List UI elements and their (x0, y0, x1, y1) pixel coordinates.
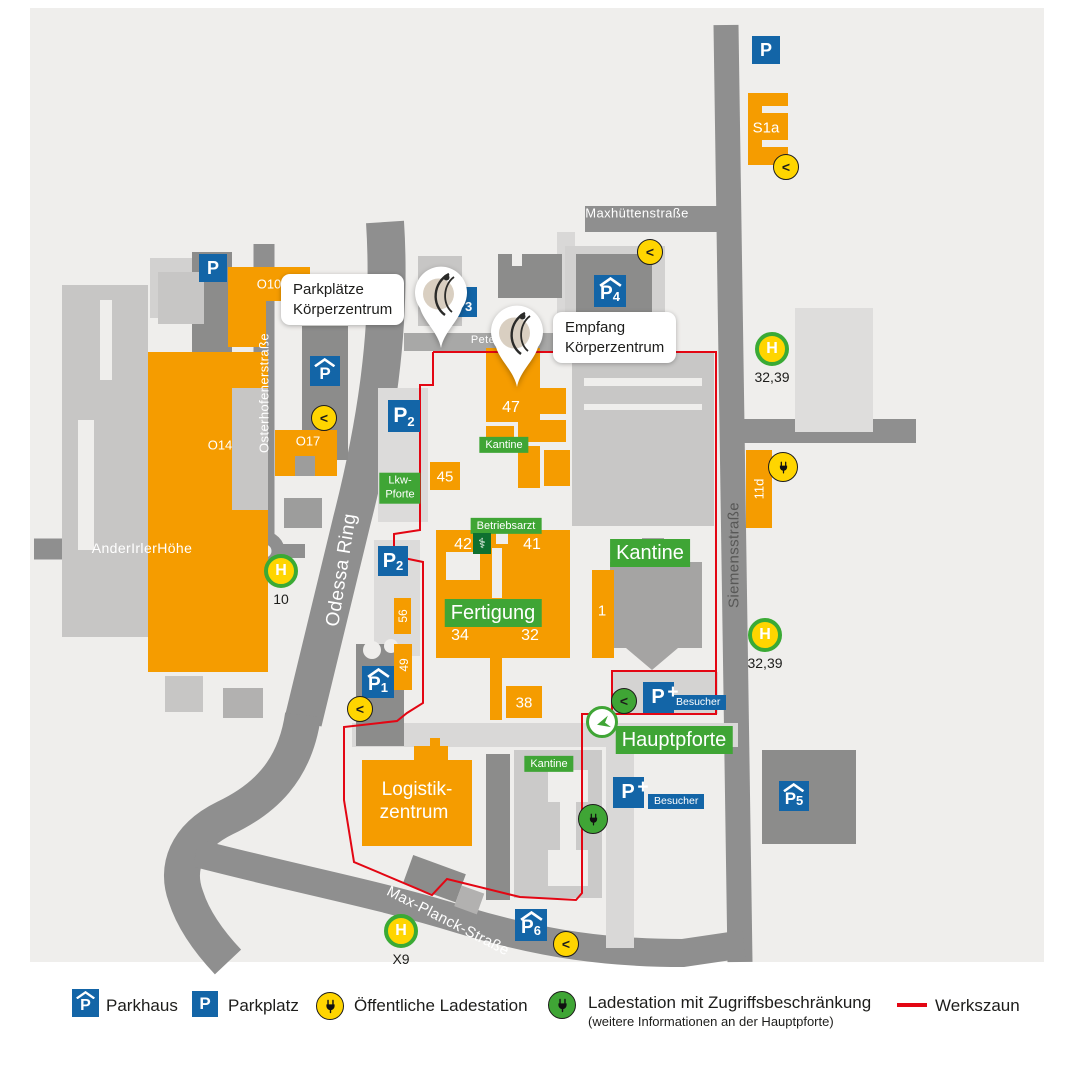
parking-sign-pplus: P+ (613, 777, 644, 808)
area-label-lkw-pforte: Lkw-Pforte (379, 473, 420, 504)
p-subscript: 1 (381, 680, 388, 695)
building-label-42: 42 (454, 536, 472, 554)
parking-sign-p: P (752, 36, 780, 64)
legend-label-restricted-charging: Ladestation mit Zugriffsbeschränkung (588, 993, 871, 1013)
building-label-11d: 11d (752, 479, 767, 500)
area-label-kantine: Kantine (610, 539, 690, 567)
bus-stop-icon: H (264, 554, 298, 588)
area-label-kantine: Kantine (524, 756, 573, 772)
parkhaus-roof-icon (313, 358, 336, 367)
building-label-o17: O17 (296, 434, 321, 449)
building-label-o14: O14 (208, 438, 233, 453)
public-charging-station-icon: < (311, 405, 337, 431)
callout-line: Körperzentrum (293, 301, 392, 318)
p-letter: P (760, 40, 772, 61)
visitor-parking-tag: Besucher (670, 695, 726, 710)
p-subscript: 5 (796, 793, 803, 808)
restricted-charging-station-icon (578, 804, 608, 834)
street-label-siemensstra-e: Siemensstraße (726, 502, 743, 608)
p-letter: P (207, 258, 219, 279)
p-letter: P (383, 550, 396, 573)
betriebsarzt-medical-icon: ⚕ (473, 533, 491, 554)
plus-sign: + (667, 682, 678, 704)
parking-sign-p6: P6 (515, 909, 547, 941)
location-pin-empfang (488, 303, 546, 389)
restricted-charging-station-icon: < (611, 688, 637, 714)
legend-label-parkhaus: Parkhaus (106, 996, 178, 1016)
plug-icon (776, 460, 791, 475)
legend-label-parkplatz: Parkplatz (228, 996, 299, 1016)
building-label-o10: O10 (257, 277, 282, 292)
street-label-osterhofenerstra-e: Osterhofenerstraße (257, 333, 272, 453)
plug-icon (586, 812, 601, 827)
public-charging-station-icon: < (637, 239, 663, 265)
building-label-49: 49 (397, 658, 411, 671)
parking-sign-p1: P1 (362, 666, 394, 698)
building-label-s1a: S1a (753, 120, 780, 137)
p-subscript: 4 (613, 289, 620, 304)
p-letter: P (651, 686, 664, 709)
parking-sign-p2: P2 (388, 400, 420, 432)
plus-sign: + (637, 777, 648, 799)
bus-stop-icon: H (755, 332, 789, 366)
public-charging-icon (316, 992, 344, 1020)
callout-line: Empfang (565, 319, 625, 336)
p-subscript: 2 (396, 558, 403, 573)
street-label-odessa-ring: Odessa Ring (322, 512, 362, 628)
building-label-38: 38 (516, 695, 533, 712)
parkhaus-roof-icon (782, 783, 805, 792)
building-label-47: 47 (502, 399, 520, 417)
area-label-betriebsarzt: Betriebsarzt (471, 518, 542, 534)
site-map: MaxhüttenstraßeOsterhofenerstraßeAnderIr… (0, 0, 1080, 1080)
public-charging-station-icon: < (347, 696, 373, 722)
fence-line (897, 1003, 927, 1007)
building-label-56: 56 (396, 609, 410, 622)
parking-sign-p: P (310, 356, 340, 386)
plug-icon (554, 997, 571, 1014)
building-label-32: 32 (521, 627, 539, 645)
public-charging-station-icon: < (773, 154, 799, 180)
legend-sublabel-restricted-charging: (weitere Informationen an der Hauptpfort… (588, 1014, 834, 1029)
building-label-logistik: Logistik- (382, 779, 453, 801)
callout-parkplaetze-koerperzentrum: Parkplätze Körperzentrum (281, 274, 404, 325)
building-label-zentrum: zentrum (380, 802, 449, 824)
public-charging-station-icon (768, 452, 798, 482)
hauptpforte-gate-icon (586, 706, 618, 738)
area-label-kantine: Kantine (479, 437, 528, 453)
parkhaus-roof-icon (366, 668, 391, 677)
location-pin-parkplaetze (412, 264, 470, 350)
callout-empfang-koerperzentrum: Empfang Körperzentrum (553, 312, 676, 363)
p-letter: P (785, 789, 796, 809)
restricted-charging-icon (548, 991, 576, 1019)
parkhaus-roof-icon (598, 277, 623, 286)
p-letter: P (319, 364, 330, 384)
parkhaus-roof-icon (519, 911, 544, 920)
public-charging-station-icon: < (553, 931, 579, 957)
plug-icon (322, 998, 339, 1015)
bus-stop-icon: H (384, 914, 418, 948)
arrow-icon (591, 711, 613, 733)
p-subscript: 2 (407, 414, 414, 429)
street-label-anderirlerh-he: AnderIrlerHöhe (92, 540, 193, 556)
callout-line: Körperzentrum (565, 339, 664, 356)
callout-line: Parkplätze (293, 281, 364, 298)
bus-stop-lines: X9 (392, 951, 409, 967)
area-label-hauptpforte: Hauptpforte (616, 726, 733, 754)
parking-sign-pplus: P+ (643, 682, 674, 713)
building-label-34: 34 (451, 627, 469, 645)
bus-stop-lines: 10 (273, 591, 289, 607)
parking-sign-p4: P4 (594, 275, 626, 307)
bus-stop-lines: 32,39 (747, 655, 782, 671)
area-label-fertigung: Fertigung (445, 599, 542, 627)
building-label-41: 41 (523, 536, 541, 554)
p-letter: P (393, 404, 407, 428)
parking-sign-p: P (199, 254, 227, 282)
building-label-45: 45 (437, 469, 454, 486)
building-label-1: 1 (598, 603, 606, 620)
bus-stop-lines: 32,39 (754, 369, 789, 385)
bus-stop-icon: H (748, 618, 782, 652)
p-letter: P (621, 781, 634, 804)
parking-sign-p5: P5 (779, 781, 809, 811)
p-subscript: 6 (534, 923, 541, 938)
parking-sign-p2: P2 (378, 546, 408, 576)
street-label-maxh-ttenstra-e: Maxhüttenstraße (585, 206, 689, 221)
legend-label-werkszaun: Werkszaun (935, 996, 1020, 1016)
legend-label-public-charging: Öffentliche Ladestation (354, 996, 528, 1016)
visitor-parking-tag: Besucher (648, 794, 704, 809)
